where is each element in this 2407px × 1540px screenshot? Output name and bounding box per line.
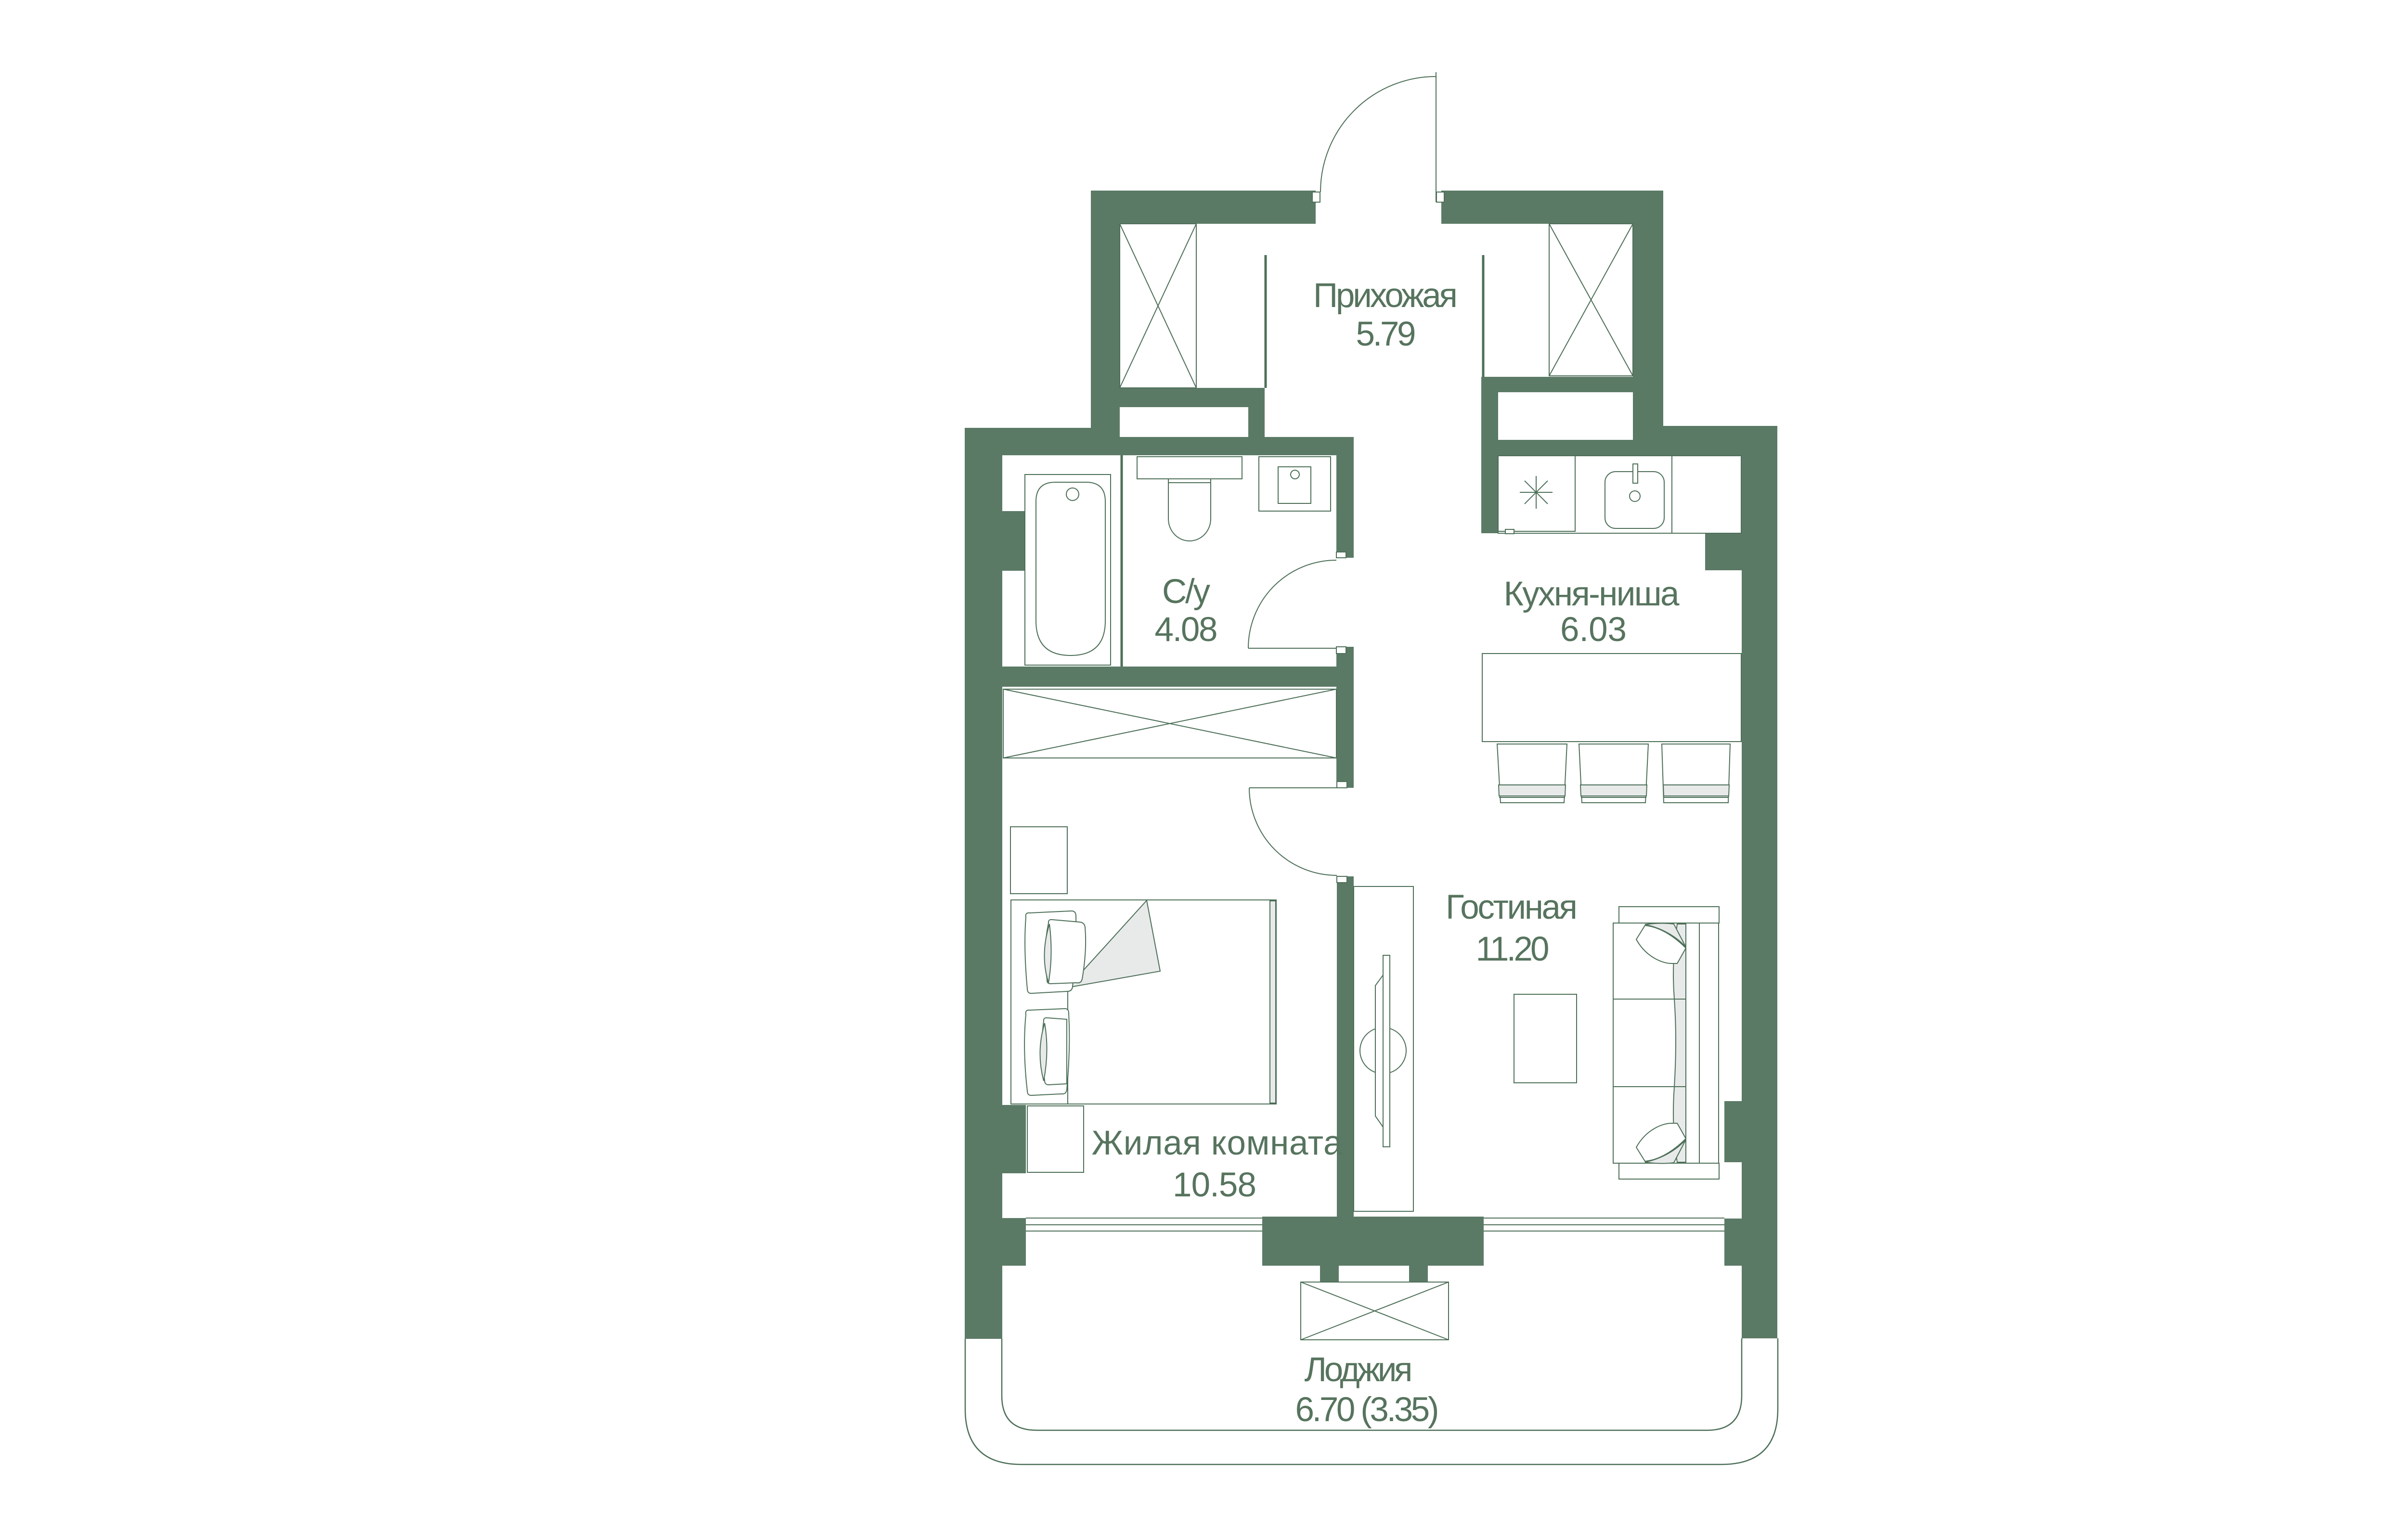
svg-text:Прихожая: Прихожая xyxy=(1313,277,1458,315)
svg-text:11.20: 11.20 xyxy=(1476,930,1550,968)
svg-text:Гостиная: Гостиная xyxy=(1446,888,1578,926)
svg-text:5.79: 5.79 xyxy=(1356,315,1416,353)
svg-text:Лоджия: Лоджия xyxy=(1305,1351,1413,1389)
svg-text:Кухня-ниша: Кухня-ниша xyxy=(1504,575,1680,613)
svg-text:10.58: 10.58 xyxy=(1173,1166,1256,1204)
svg-text:6.03: 6.03 xyxy=(1560,611,1627,649)
svg-text:С/у: С/у xyxy=(1162,573,1211,611)
svg-text:Жилая комната: Жилая комната xyxy=(1092,1124,1343,1162)
svg-text:4.08: 4.08 xyxy=(1155,611,1218,649)
svg-text:6.70 (3.35): 6.70 (3.35) xyxy=(1295,1391,1439,1429)
